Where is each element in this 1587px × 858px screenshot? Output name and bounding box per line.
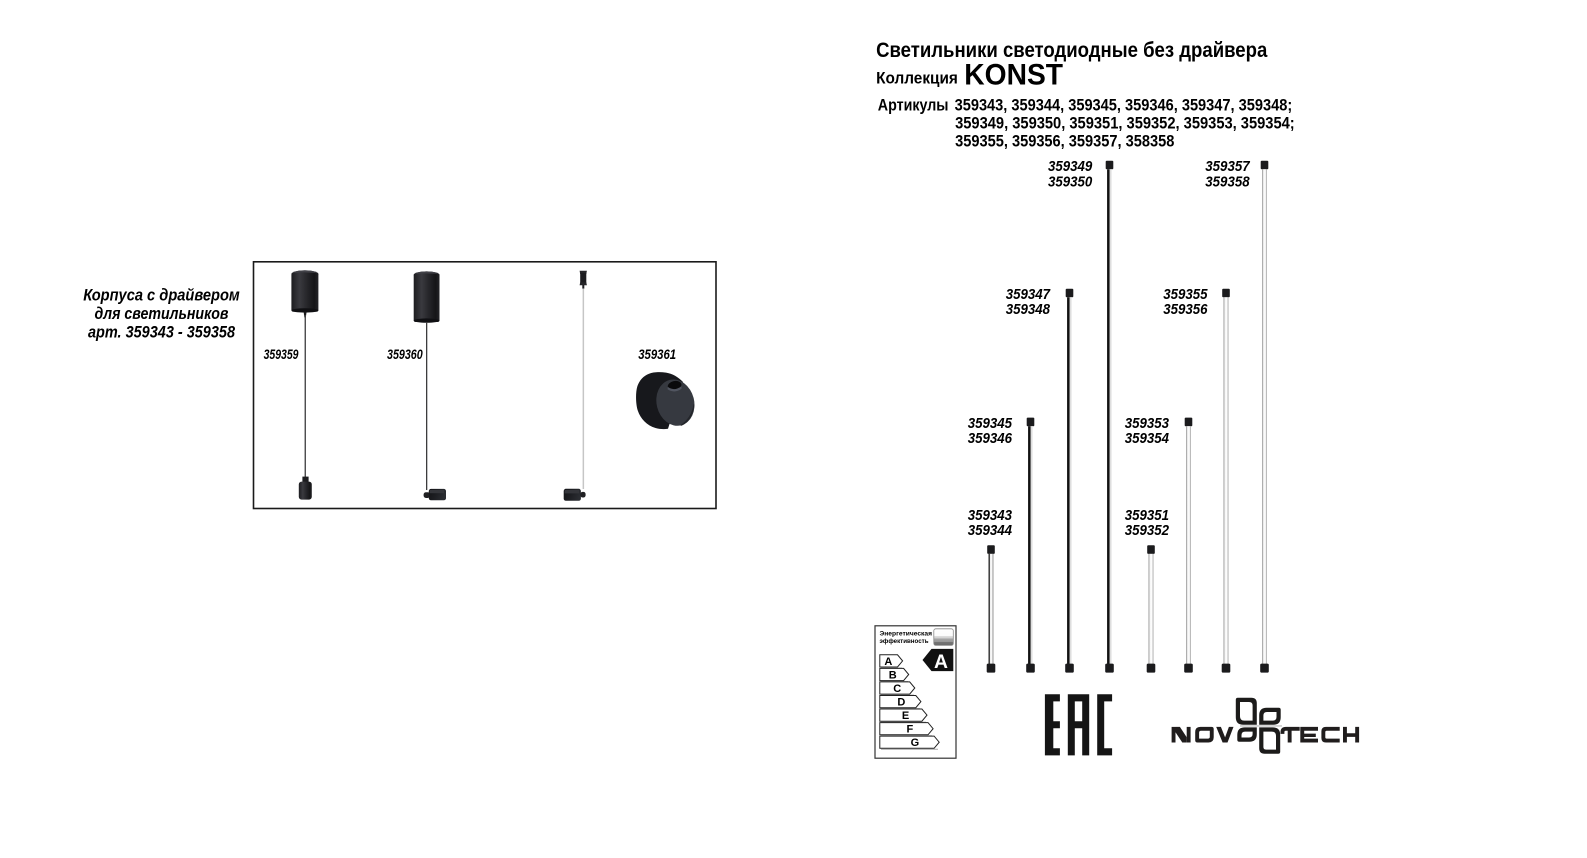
svg-text:D: D [897,697,905,709]
svg-text:A: A [884,656,892,668]
svg-text:359353: 359353 [1125,416,1169,432]
svg-text:359345: 359345 [968,416,1013,432]
svg-text:для светильников: для светильников [95,305,229,323]
svg-text:359351: 359351 [1125,508,1169,524]
svg-text:Энергетическая: Энергетическая [880,630,933,637]
svg-text:359352: 359352 [1125,523,1169,539]
svg-text:эффективность: эффективность [880,638,929,645]
svg-text:359355: 359355 [1163,287,1208,303]
svg-text:359348: 359348 [1006,302,1051,318]
svg-text:359355, 359356, 359357, 358358: 359355, 359356, 359357, 358358 [955,133,1174,151]
svg-text:359360: 359360 [387,347,423,362]
svg-text:A: A [934,651,948,673]
svg-text:359343, 359344, 359345, 359346: 359343, 359344, 359345, 359346, 359347, … [955,97,1293,115]
svg-text:359354: 359354 [1125,431,1169,447]
svg-text:359343: 359343 [968,508,1012,524]
svg-text:F: F [907,724,914,736]
svg-text:359349, 359350, 359351, 359352: 359349, 359350, 359351, 359352, 359353, … [955,115,1295,133]
svg-text:E: E [902,710,909,722]
svg-text:Светильники светодиодные без д: Светильники светодиодные без драйвера [876,37,1268,62]
svg-text:арт. 359343 - 359358: арт. 359343 - 359358 [88,323,236,341]
svg-text:C: C [893,683,901,695]
svg-text:359358: 359358 [1205,174,1250,190]
svg-text:359359: 359359 [264,347,299,362]
svg-text:359350: 359350 [1048,174,1092,190]
svg-text:359356: 359356 [1163,302,1208,318]
svg-text:359361: 359361 [638,347,676,362]
svg-text:359344: 359344 [968,523,1012,539]
svg-text:359349: 359349 [1048,159,1093,175]
svg-text:Коллекция: Коллекция [876,69,958,88]
svg-text:Артикулы: Артикулы [878,97,949,115]
svg-text:B: B [889,670,897,682]
svg-text:KONST: KONST [964,58,1063,91]
svg-text:359346: 359346 [968,431,1013,447]
svg-text:Корпуса с драйвером: Корпуса с драйвером [83,286,240,304]
svg-text:359347: 359347 [1006,287,1051,303]
svg-text:359357: 359357 [1205,159,1250,175]
svg-text:G: G [911,737,920,749]
